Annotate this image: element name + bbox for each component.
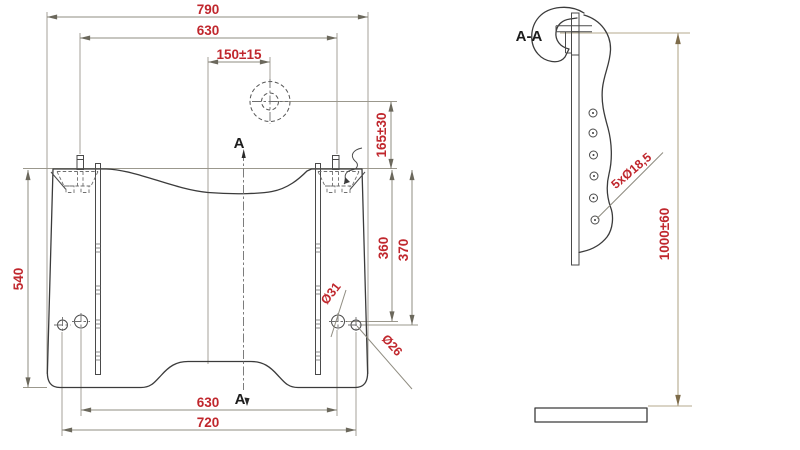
technical-drawing-page: 790 630 150±15 165±30 360 370 540 630 72… <box>0 0 800 450</box>
slot-bar-right-ticks <box>316 244 321 360</box>
dim-630-bottom-label: 630 <box>197 395 220 410</box>
section-plate-silhouette <box>579 15 613 253</box>
hole-dia-26-label: Ø26 <box>379 332 405 359</box>
dim-790-label: 790 <box>197 2 220 17</box>
section-marker-top-label: A <box>234 135 245 152</box>
section-title: A-A <box>516 28 543 45</box>
section-view: A-A 5xØ18,5 1000±60 <box>516 7 692 422</box>
bracket-hidden-left <box>57 172 98 193</box>
dim-150-label: 150±15 <box>217 47 262 62</box>
bracket-hidden-right <box>318 172 359 193</box>
slot-bar-left <box>96 164 101 375</box>
dim-720-label: 720 <box>197 415 220 430</box>
dim-360-label: 360 <box>376 237 391 260</box>
section-bottom-bar <box>535 408 647 422</box>
section-marker-bottom-label: A <box>235 391 246 408</box>
pin-left <box>77 156 84 170</box>
extension-lines <box>23 12 418 436</box>
section-bolt-holes <box>589 109 599 224</box>
section-bar <box>572 13 580 265</box>
dim-370-label: 370 <box>396 239 411 262</box>
slot-bar-left-ticks <box>96 244 101 360</box>
front-view: 790 630 150±15 165±30 360 370 540 630 72… <box>11 2 418 436</box>
pin-right <box>333 156 340 170</box>
freehand-squiggle-arrow <box>344 177 350 184</box>
hole-dia-31-label: Ø31 <box>318 280 344 307</box>
section-line <box>242 149 250 406</box>
holes-count-label: 5xØ18,5 <box>609 150 655 192</box>
hook-latch <box>556 26 592 53</box>
section-dimension-1000 <box>560 33 692 406</box>
slot-bar-right <box>316 164 321 375</box>
dim-1000-label: 1000±60 <box>657 208 672 260</box>
dimension-lines <box>28 17 412 430</box>
dim-540-label: 540 <box>11 268 26 291</box>
drawing-svg: 790 630 150±15 165±30 360 370 540 630 72… <box>0 0 800 450</box>
dim-630-top-label: 630 <box>197 23 220 38</box>
dim-165-label: 165±30 <box>374 113 389 158</box>
